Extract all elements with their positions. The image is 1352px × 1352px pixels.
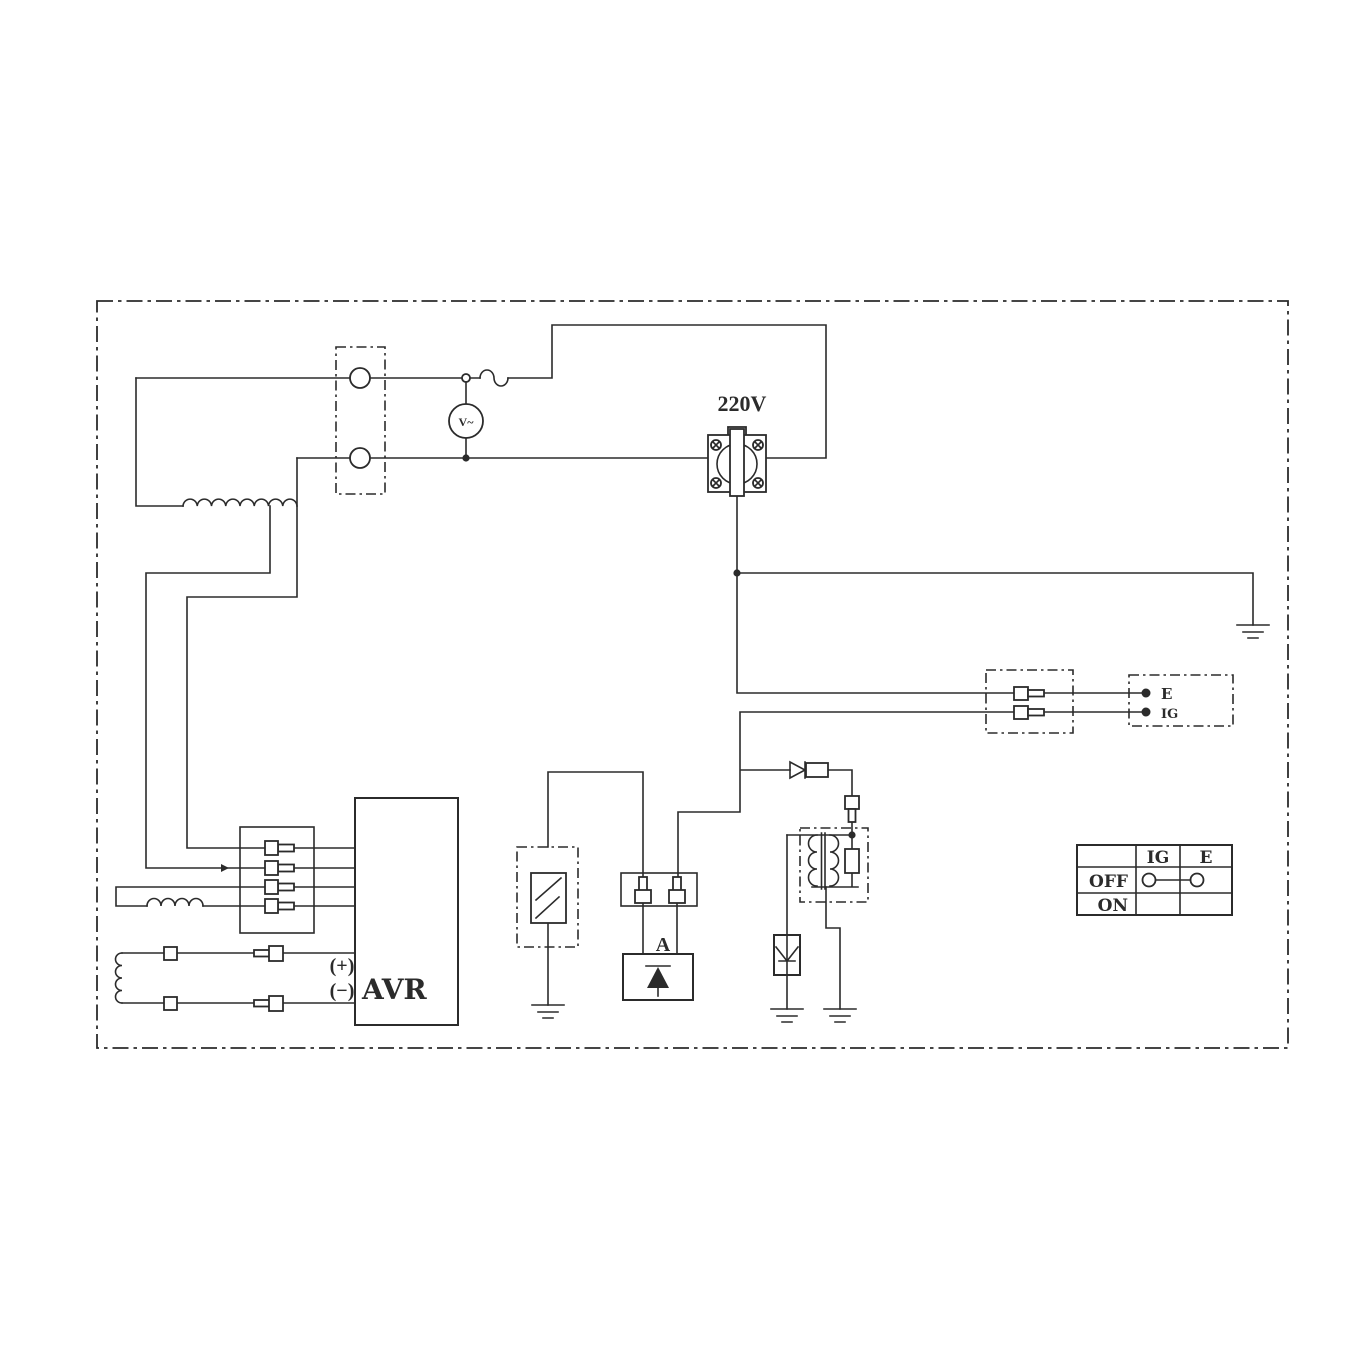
power-outlet: 220V bbox=[708, 391, 767, 496]
voltmeter-label: V~ bbox=[459, 415, 475, 429]
off-contact-icon bbox=[1143, 874, 1204, 887]
wire-ign-gnd bbox=[826, 887, 840, 1009]
pin-socket-icon bbox=[265, 861, 278, 875]
pin-socket-icon bbox=[265, 841, 278, 855]
wire-ig bbox=[678, 712, 1142, 877]
connector-square-icon bbox=[269, 946, 283, 961]
terminal-e-dot bbox=[1142, 689, 1151, 698]
wire-arrow-mark bbox=[221, 864, 229, 872]
connector-square-icon bbox=[269, 996, 283, 1011]
wire-pins-avr bbox=[294, 848, 355, 906]
ground-icon bbox=[532, 1005, 564, 1018]
pin-socket-icon bbox=[669, 890, 685, 903]
rectifier-connector-2pin bbox=[621, 873, 697, 906]
exciter-winding-coil-icon bbox=[147, 899, 203, 907]
junction-node-open bbox=[462, 374, 470, 382]
pin-icon bbox=[673, 877, 681, 891]
pin-icon bbox=[278, 903, 294, 910]
wire-condenser-bridge bbox=[548, 772, 643, 877]
secondary-winding-icon bbox=[830, 835, 839, 886]
terminal-circle-bottom bbox=[350, 448, 370, 468]
junction-dot bbox=[848, 831, 855, 838]
fuse-icon bbox=[480, 370, 508, 386]
outlet-slot bbox=[730, 429, 744, 496]
outlet-voltage-label: 220V bbox=[718, 391, 767, 416]
wire-gen-l1-down bbox=[136, 378, 183, 506]
junction-dot bbox=[462, 454, 469, 461]
engine-terminal-box: E IG bbox=[1129, 675, 1233, 726]
ground-icon bbox=[771, 1009, 803, 1022]
connector-square-icon bbox=[164, 997, 177, 1010]
voltmeter: V~ bbox=[449, 404, 483, 438]
rectifier-a-label: A bbox=[656, 934, 671, 956]
pin-icon bbox=[278, 884, 294, 891]
ground-icon bbox=[1237, 625, 1269, 638]
engine-terminal-border bbox=[1129, 675, 1233, 726]
wire-charge bbox=[122, 953, 355, 1003]
connector-square-icon bbox=[1014, 687, 1028, 700]
wiring-diagram: V~ 220V bbox=[0, 0, 1352, 1352]
ground-icon bbox=[824, 1009, 856, 1022]
avr-label: AVR bbox=[361, 973, 427, 1006]
engine-connector-block bbox=[986, 670, 1073, 733]
avr-plus-label: (+) bbox=[330, 955, 355, 977]
blocking-diode-icon bbox=[790, 762, 805, 778]
pin-icon bbox=[849, 809, 856, 822]
diode-icon bbox=[646, 966, 670, 996]
terminal-circle-top bbox=[350, 368, 370, 388]
main-winding-coil-icon bbox=[183, 499, 297, 506]
terminal-ig-dot bbox=[1142, 708, 1151, 717]
connector-square-icon bbox=[164, 947, 177, 960]
frame-border bbox=[97, 301, 1288, 1048]
table-header-e: E bbox=[1200, 848, 1213, 868]
table-header-ig: IG bbox=[1147, 848, 1169, 868]
junction-dot bbox=[733, 569, 740, 576]
primary-winding-icon bbox=[809, 835, 818, 886]
pin-icon bbox=[254, 1000, 270, 1007]
wire-sense-1 bbox=[187, 458, 297, 848]
table-row-off: OFF bbox=[1089, 872, 1128, 892]
ignition-coil bbox=[800, 828, 868, 902]
pin-socket-icon bbox=[635, 890, 651, 903]
pin-icon bbox=[254, 950, 270, 957]
condenser-body bbox=[531, 873, 566, 923]
terminal-ig-label: IG bbox=[1161, 707, 1178, 722]
pin-icon bbox=[639, 877, 647, 891]
connector-square-icon bbox=[845, 796, 859, 809]
pin-icon bbox=[278, 845, 294, 852]
charge-winding-coil-icon bbox=[116, 953, 122, 1003]
resistor-icon bbox=[806, 763, 828, 777]
rectifier-diode-unit: A bbox=[623, 934, 693, 1000]
wire-earth-e bbox=[737, 496, 1253, 693]
spark-plug-connector bbox=[845, 796, 859, 822]
engine-switch-table: IG E OFF ON bbox=[1077, 845, 1232, 916]
coil-resistor-icon bbox=[845, 849, 859, 873]
coil-core-icon bbox=[822, 833, 826, 889]
avr-minus-label: (−) bbox=[330, 980, 355, 1002]
connector-square-icon bbox=[1014, 706, 1028, 719]
engine-connector-box bbox=[986, 670, 1073, 733]
wire-exciter bbox=[116, 887, 265, 906]
table-row-on: ON bbox=[1098, 896, 1128, 916]
wire-fuse-to-outlet bbox=[508, 325, 826, 458]
avr-unit: AVR bbox=[355, 798, 458, 1025]
pin-icon bbox=[1028, 709, 1044, 716]
pin-icon bbox=[278, 865, 294, 872]
charge-line-connectors bbox=[164, 946, 283, 1011]
pin-socket-icon bbox=[265, 899, 278, 913]
terminal-block bbox=[336, 347, 385, 494]
pin-socket-icon bbox=[265, 880, 278, 894]
connector-pins bbox=[265, 841, 294, 913]
terminal-e-label: E bbox=[1161, 685, 1172, 703]
connector-4pin bbox=[240, 827, 314, 933]
pin-icon bbox=[1028, 690, 1044, 697]
wire-sense-2 bbox=[146, 506, 270, 868]
diagram-canvas: V~ 220V bbox=[0, 0, 1352, 1352]
